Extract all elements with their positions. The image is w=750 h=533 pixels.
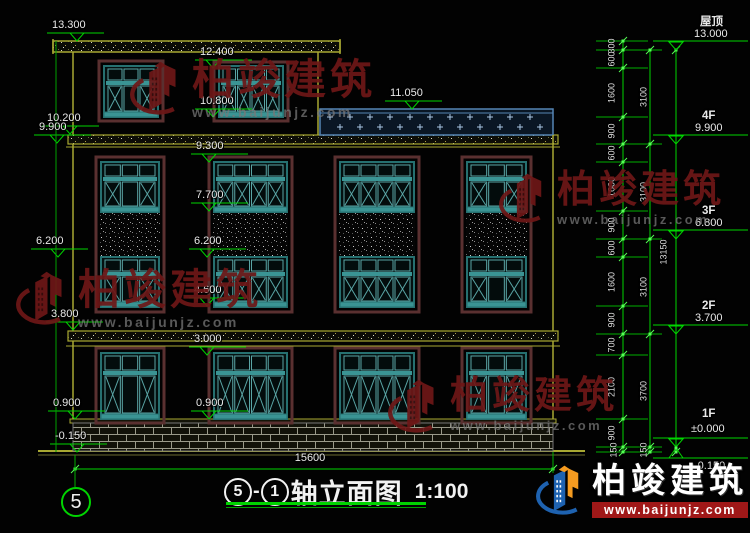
brand-logo-icon: [16, 268, 72, 333]
brand-logo-icon: [130, 58, 186, 123]
watermark-url: www.baijunjz.com: [78, 314, 262, 330]
watermark: 柏竣建筑 www.baijunjz.com: [499, 170, 725, 231]
title-underline: [226, 507, 426, 508]
brand-logo-icon: [536, 462, 588, 523]
building-logo-icon: [499, 170, 551, 226]
watermark: 柏竣建筑 www.baijunjz.com: [16, 268, 262, 333]
watermark-brand: 柏竣建筑: [450, 376, 618, 416]
watermark: 柏竣建筑 www.baijunjz.com: [130, 58, 376, 123]
title-underline: [226, 502, 426, 505]
brand-logo-icon: [388, 376, 444, 441]
watermark-url: www.baijunjz.com: [557, 212, 725, 227]
watermark-url: www.baijunjz.com: [450, 418, 618, 433]
watermark-brand: 柏竣建筑: [557, 170, 725, 210]
title-dash: -: [253, 480, 260, 503]
building-logo-icon: [536, 462, 588, 518]
footer-brand-block: 柏竣建筑 www.baijunjz.com: [536, 462, 748, 523]
footer-brand: 柏竣建筑: [592, 462, 748, 500]
watermark-brand: 柏竣建筑: [78, 268, 262, 312]
cad-elevation-drawing: 13.30010.2009.9006.2003.8000.900-0.15012…: [0, 0, 750, 533]
building-logo-icon: [16, 268, 72, 328]
watermark-brand: 柏竣建筑: [192, 58, 376, 102]
title-text: 轴立面图: [291, 472, 403, 511]
watermark: 柏竣建筑 www.baijunjz.com: [388, 376, 618, 441]
title-scale: 1:100: [415, 480, 469, 504]
building-logo-icon: [130, 58, 186, 118]
building-logo-icon: [388, 376, 444, 436]
brand-logo-icon: [499, 170, 551, 231]
drawing-title: 5 - 1 轴立面图 1:100: [224, 472, 468, 511]
footer-url: www.baijunjz.com: [592, 502, 748, 518]
watermark-url: www.baijunjz.com: [192, 104, 376, 120]
axis-bubble-5: 5: [61, 487, 91, 517]
